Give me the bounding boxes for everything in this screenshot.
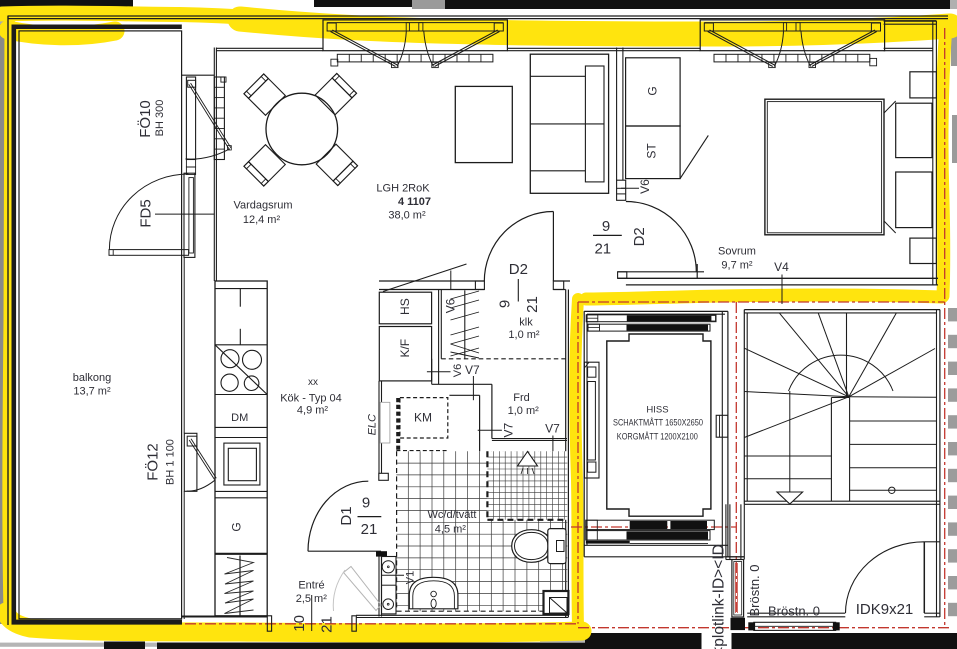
svg-text:Entré: Entré (298, 580, 324, 592)
svg-text:V1: V1 (405, 571, 417, 584)
svg-text:Vardagsrum: Vardagsrum (233, 200, 292, 212)
svg-text:38,0 m²: 38,0 m² (388, 210, 426, 222)
svg-text:V4: V4 (774, 260, 789, 274)
svg-text:G: G (230, 522, 244, 531)
svg-text:DM: DM (231, 412, 248, 424)
svg-text:21: 21 (318, 616, 335, 633)
svg-text:V7: V7 (465, 363, 480, 377)
svg-text:BH 300: BH 300 (154, 100, 166, 137)
svg-text:balkong: balkong (73, 372, 112, 384)
svg-text:IDK9x21: IDK9x21 (856, 601, 914, 618)
svg-text:G: G (646, 86, 660, 95)
svg-text:1,0 m²: 1,0 m² (508, 405, 540, 417)
svg-text:D2: D2 (631, 227, 648, 246)
svg-text:12,4 m²: 12,4 m² (243, 214, 281, 226)
svg-text:klk: klk (519, 317, 533, 329)
svg-text:V7: V7 (545, 422, 560, 436)
svg-text:SCHAKTMÅTT 1650X2650: SCHAKTMÅTT 1650X2650 (613, 418, 703, 428)
svg-text:ELC: ELC (367, 414, 379, 435)
svg-text:21: 21 (361, 521, 378, 538)
svg-text:10: 10 (291, 615, 308, 632)
svg-text:BH 1 100: BH 1 100 (165, 439, 177, 485)
svg-text:D1: D1 (338, 506, 355, 525)
svg-text:HISS: HISS (646, 404, 668, 415)
svg-text:V6: V6 (443, 298, 457, 313)
svg-text:9,7 m²: 9,7 m² (721, 260, 753, 272)
svg-text:13,7 m²: 13,7 m² (73, 386, 111, 398)
svg-text:KM: KM (414, 411, 432, 425)
svg-text:LGH 2RoK: LGH 2RoK (376, 183, 430, 195)
svg-text:Bröstn. 0: Bröstn. 0 (747, 564, 762, 616)
svg-text:V6: V6 (638, 179, 652, 194)
svg-text:Sovrum: Sovrum (718, 246, 756, 258)
svg-text:V7: V7 (502, 423, 516, 438)
svg-text:4,9 m²: 4,9 m² (297, 405, 329, 417)
svg-text:FÖ10: FÖ10 (136, 100, 154, 138)
svg-text:Kök - Typ 04: Kök - Typ 04 (280, 393, 342, 405)
svg-text:9: 9 (496, 300, 513, 308)
svg-text:21: 21 (524, 296, 541, 313)
svg-text:FD5: FD5 (138, 199, 155, 227)
svg-text:1,0 m²: 1,0 m² (508, 329, 540, 341)
svg-text:K/F: K/F (398, 339, 412, 358)
svg-text:HS: HS (398, 298, 412, 315)
svg-text:FÖ12: FÖ12 (144, 443, 162, 481)
svg-text:4 1107: 4 1107 (398, 196, 431, 208)
svg-text:xx: xx (308, 377, 318, 388)
svg-text:<plotlink-ID><ID: <plotlink-ID><ID (711, 544, 728, 649)
svg-text:Frd: Frd (513, 392, 530, 404)
svg-text:V6: V6 (452, 364, 464, 377)
svg-text:2,5 m²: 2,5 m² (296, 593, 328, 605)
svg-text:4,5 m²: 4,5 m² (435, 523, 467, 535)
svg-text:Wc/d/tvätt: Wc/d/tvätt (428, 509, 477, 521)
svg-text:ST: ST (645, 143, 659, 159)
svg-text:KORGMÅTT 1200X2100: KORGMÅTT 1200X2100 (617, 432, 698, 442)
svg-text:21: 21 (594, 241, 611, 258)
svg-text:9: 9 (602, 218, 610, 235)
svg-text:Bröstn. 0: Bröstn. 0 (768, 604, 820, 619)
svg-text:9: 9 (362, 495, 370, 512)
svg-text:D2: D2 (509, 261, 528, 278)
